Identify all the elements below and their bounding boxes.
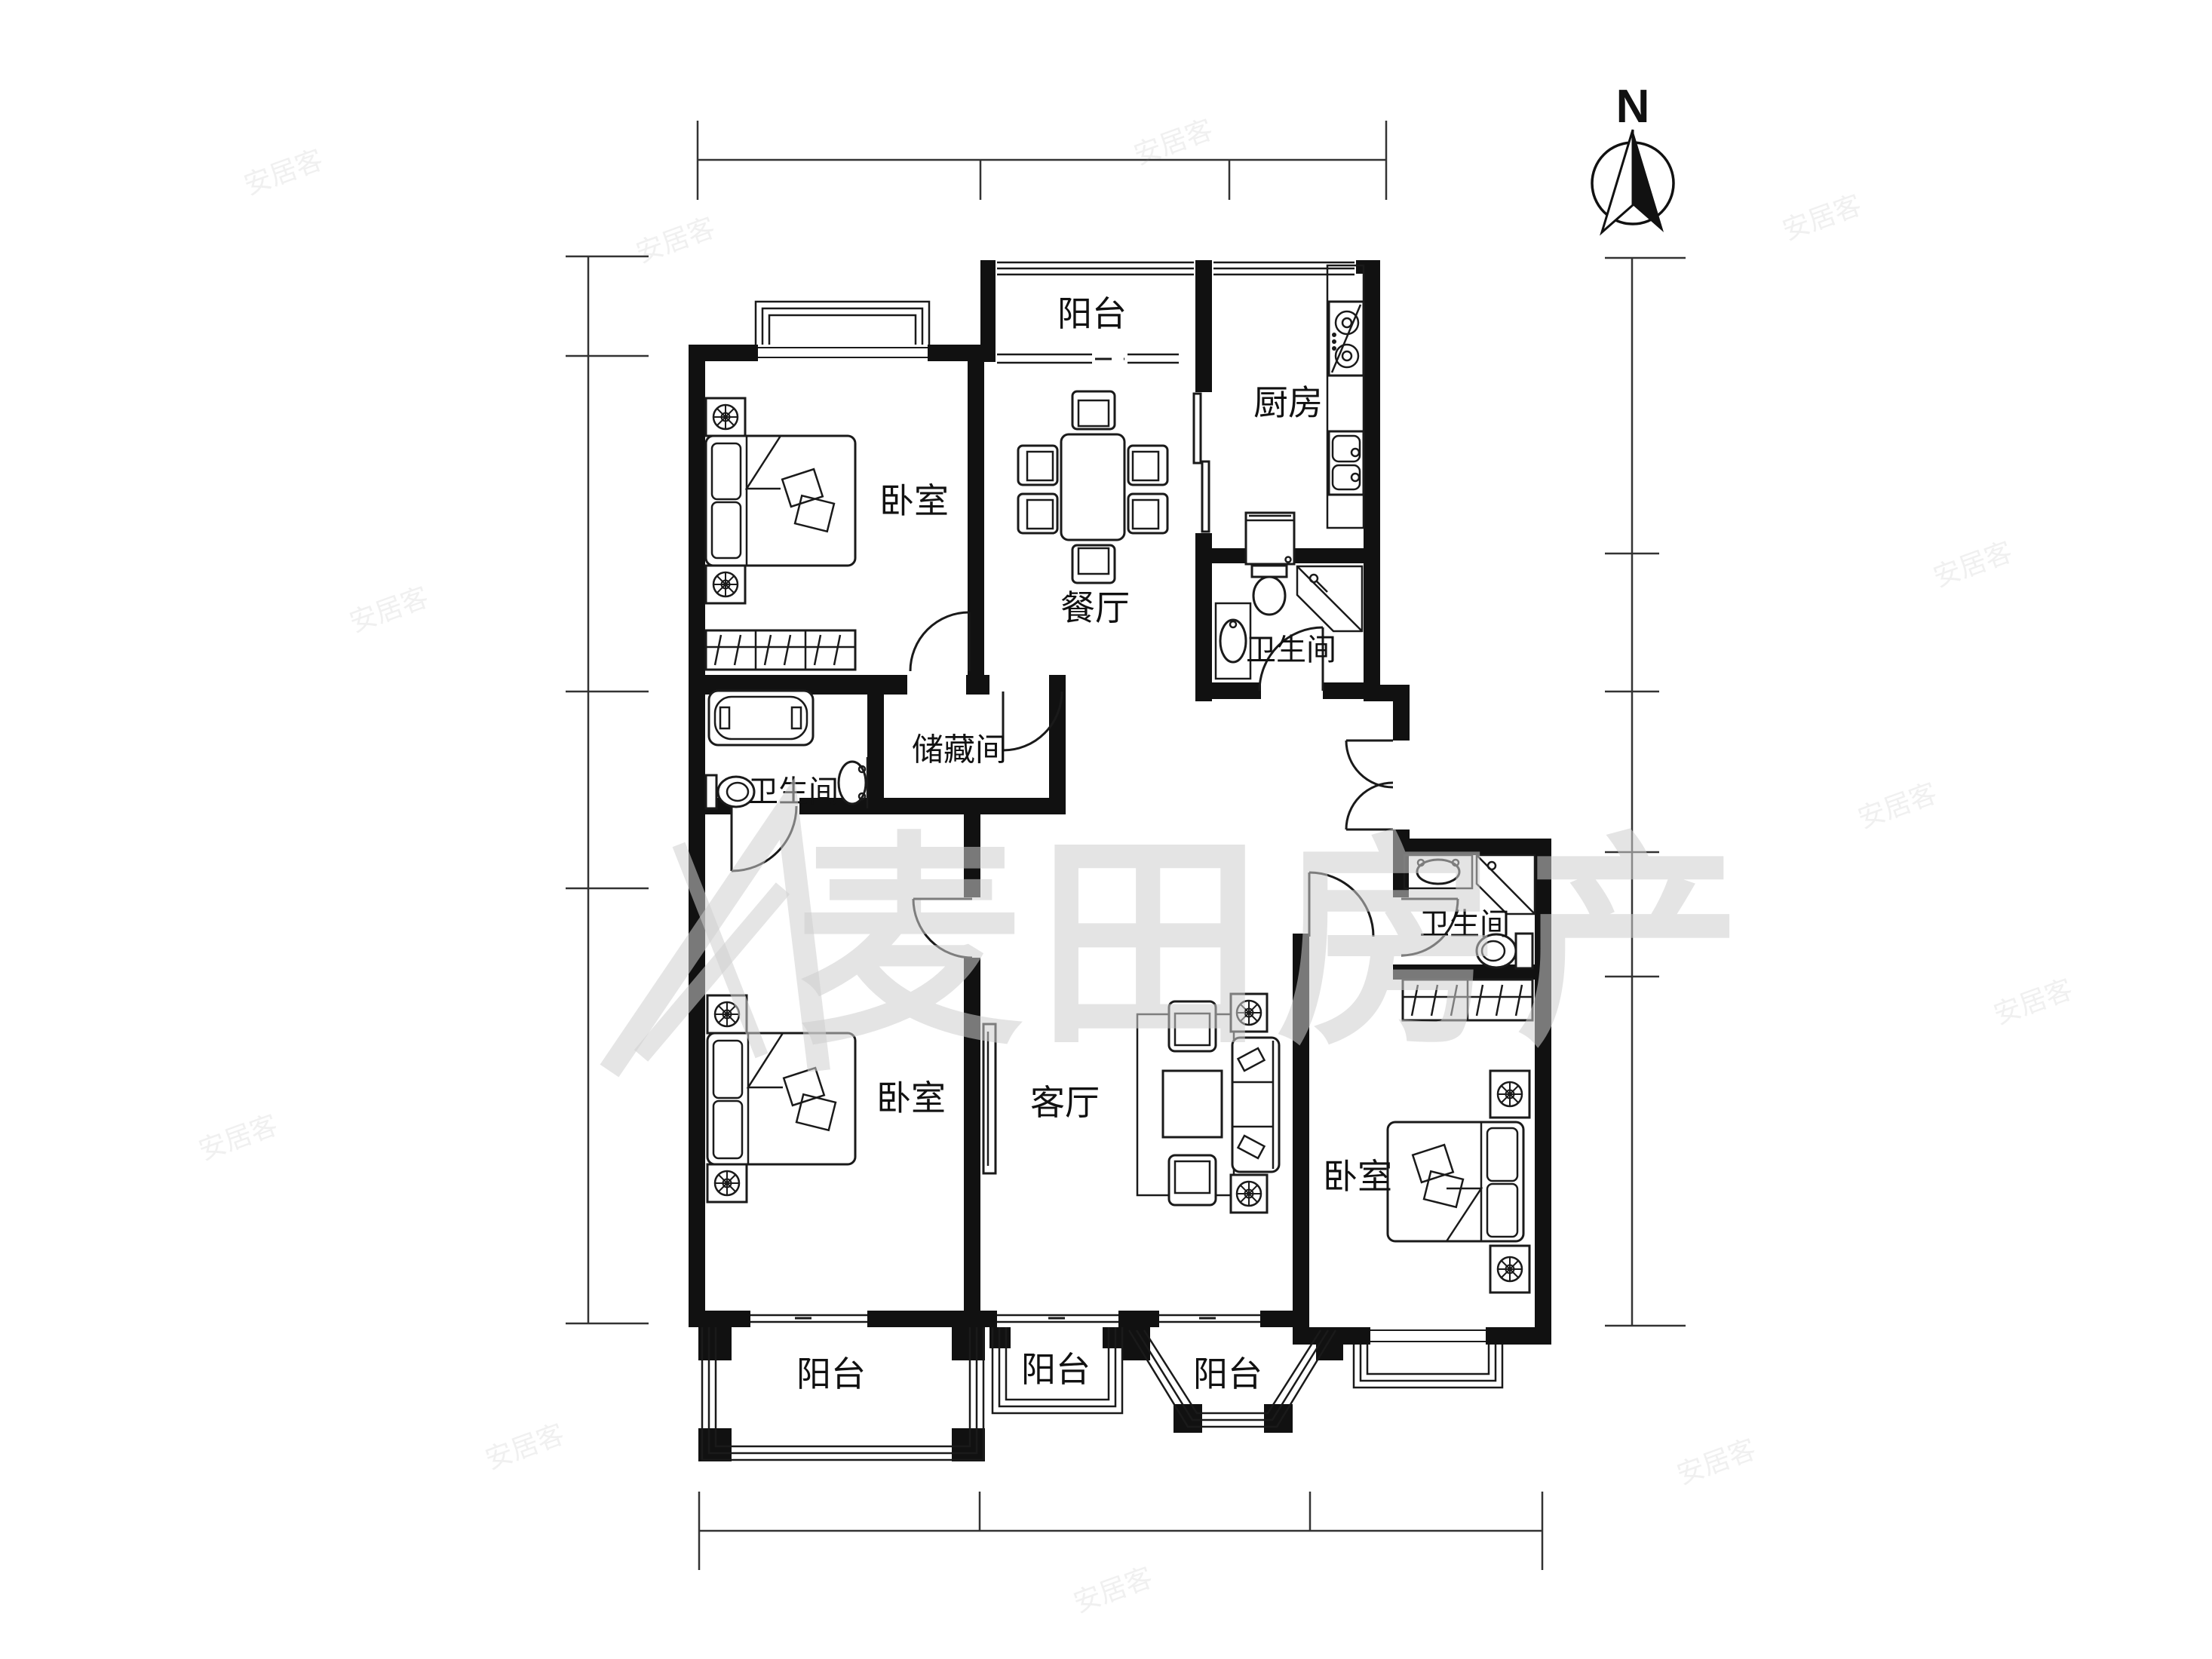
dimension-line-bottom xyxy=(699,1492,1542,1570)
room-label-living: 客厅 xyxy=(1030,1083,1100,1122)
dimension-line-left xyxy=(566,256,649,1323)
bathtub-icon xyxy=(709,691,813,745)
room-label-bathroom-north: 卫生间 xyxy=(1246,633,1336,667)
north-compass: N xyxy=(1592,81,1674,232)
bay-window-icon xyxy=(756,302,929,357)
svg-text:安居客: 安居客 xyxy=(1990,974,2077,1030)
svg-text:安居客: 安居客 xyxy=(1854,777,1941,834)
entry-double-door xyxy=(1346,741,1393,830)
watermark: 麦田房产 安居客 安居客 安居客 安居客 安居客 安居客 安居客 安居客 安居客… xyxy=(195,114,2077,1618)
furniture-dining xyxy=(1018,391,1167,583)
floor-plan-page: N xyxy=(0,0,2212,1659)
nightstand-lamp-icon xyxy=(1490,1246,1529,1293)
room-label-dining: 餐厅 xyxy=(1060,588,1130,627)
svg-text:安居客: 安居客 xyxy=(195,1109,282,1166)
svg-text:安居客: 安居客 xyxy=(240,144,327,201)
balcony-railings xyxy=(702,1327,1336,1460)
balcony-partition-window xyxy=(997,354,1179,363)
armchair-icon xyxy=(1169,1155,1216,1205)
svg-text:安居客: 安居客 xyxy=(481,1418,569,1475)
shower-corner-icon xyxy=(1297,566,1362,631)
room-label-balcony-southeast: 阳台 xyxy=(1193,1354,1262,1394)
washing-machine-icon xyxy=(1246,513,1294,564)
coffee-table-icon xyxy=(1163,1071,1222,1137)
toilet-icon xyxy=(1252,566,1287,615)
nightstand-lamp-icon xyxy=(706,566,745,603)
nightstand-lamp-icon xyxy=(707,1164,747,1202)
north-arrow-icon xyxy=(1592,130,1674,232)
room-label-bedroom-southeast: 卧室 xyxy=(1323,1157,1392,1196)
room-label-kitchen: 厨房 xyxy=(1253,383,1323,422)
room-label-balcony-north: 阳台 xyxy=(1057,294,1127,333)
balcony-door-window-southwest xyxy=(750,1315,867,1322)
double-bed-icon xyxy=(1388,1122,1523,1241)
window-icon xyxy=(997,262,1355,274)
wardrobe-hangers-icon xyxy=(706,630,855,670)
compass-label: N xyxy=(1616,81,1650,133)
double-bed-icon xyxy=(706,436,855,566)
room-label-balcony-southwest: 阳台 xyxy=(796,1354,866,1394)
svg-text:安居客: 安居客 xyxy=(1673,1434,1760,1490)
dining-table-icon xyxy=(1061,434,1124,540)
kitchen-sink-icon xyxy=(1329,431,1364,495)
svg-text:安居客: 安居客 xyxy=(1778,189,1866,246)
svg-text:安居客: 安居客 xyxy=(1069,1562,1157,1618)
room-label-bedroom-southwest: 卧室 xyxy=(876,1078,946,1118)
room-label-bedroom-northwest: 卧室 xyxy=(879,481,949,520)
nightstand-lamp-icon xyxy=(1490,1071,1529,1118)
svg-text:安居客: 安居客 xyxy=(1130,114,1217,170)
svg-text:安居客: 安居客 xyxy=(1929,536,2017,593)
furniture-bedroom-northwest xyxy=(706,398,855,670)
dimension-line-top xyxy=(698,121,1386,200)
nightstand-lamp-icon xyxy=(706,398,745,436)
dimension-line-right xyxy=(1605,258,1686,1326)
brand-watermark-text: 麦田房产 xyxy=(796,817,1756,1071)
svg-text:安居客: 安居客 xyxy=(632,212,719,268)
bay-window-southeast-icon xyxy=(1354,1330,1502,1388)
kitchen-sliding-door xyxy=(1194,394,1209,532)
side-table-lamp-icon xyxy=(1231,1175,1267,1213)
furniture-bedroom-southeast xyxy=(1388,1071,1529,1293)
toilet-icon xyxy=(706,775,754,808)
gas-stove-icon xyxy=(1329,302,1364,376)
svg-text:安居客: 安居客 xyxy=(345,581,433,638)
balcony-railing-icon xyxy=(702,1327,983,1460)
room-label-storage: 储藏间 xyxy=(912,732,1007,768)
room-label-balcony-south: 阳台 xyxy=(1021,1350,1091,1389)
